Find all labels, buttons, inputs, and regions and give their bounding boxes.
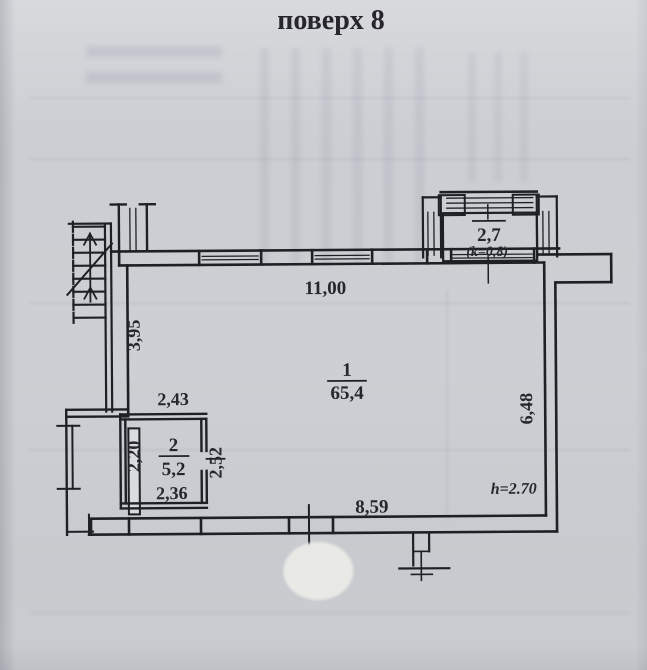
room2-area: 5,2 [162, 459, 186, 480]
dim-bottom-wall: 8,59 [355, 497, 388, 518]
dim-top-wall: 11,00 [304, 278, 346, 299]
scanned-floor-plan-photo: поверх 8 [0, 0, 647, 670]
room1-area: 65,4 [330, 383, 364, 404]
room1-number: 1 [342, 360, 352, 381]
vent-shaft-top [111, 204, 155, 251]
dim-room2-right: 2,52 [205, 447, 225, 479]
balcony-coefficient: (k=0,8) [466, 245, 508, 260]
staircase [67, 222, 113, 412]
riser-symbol [399, 532, 449, 580]
dim-room2-bottom: 2,36 [156, 483, 188, 503]
bottom-wall [89, 503, 557, 546]
floor-plan-svg: поверх 8 [0, 0, 647, 670]
right-wall [539, 254, 613, 531]
ceiling-height-label: h=2.70 [491, 481, 537, 498]
erased-watermark-spot [283, 542, 353, 600]
dim-room2-left: 2,20 [123, 441, 143, 473]
room2-number: 2 [169, 435, 179, 456]
balcony-area: 2,7 [477, 225, 501, 246]
dim-stair-wall: 3,95 [124, 320, 144, 352]
photo-shadow-left [0, 0, 16, 670]
photo-shadow-bottom [0, 644, 647, 670]
photo-shadow-right [635, 0, 647, 670]
dim-room2-top: 2,43 [157, 389, 189, 409]
dim-right-wall: 6,48 [516, 393, 536, 425]
floor-title: поверх 8 [277, 5, 385, 36]
